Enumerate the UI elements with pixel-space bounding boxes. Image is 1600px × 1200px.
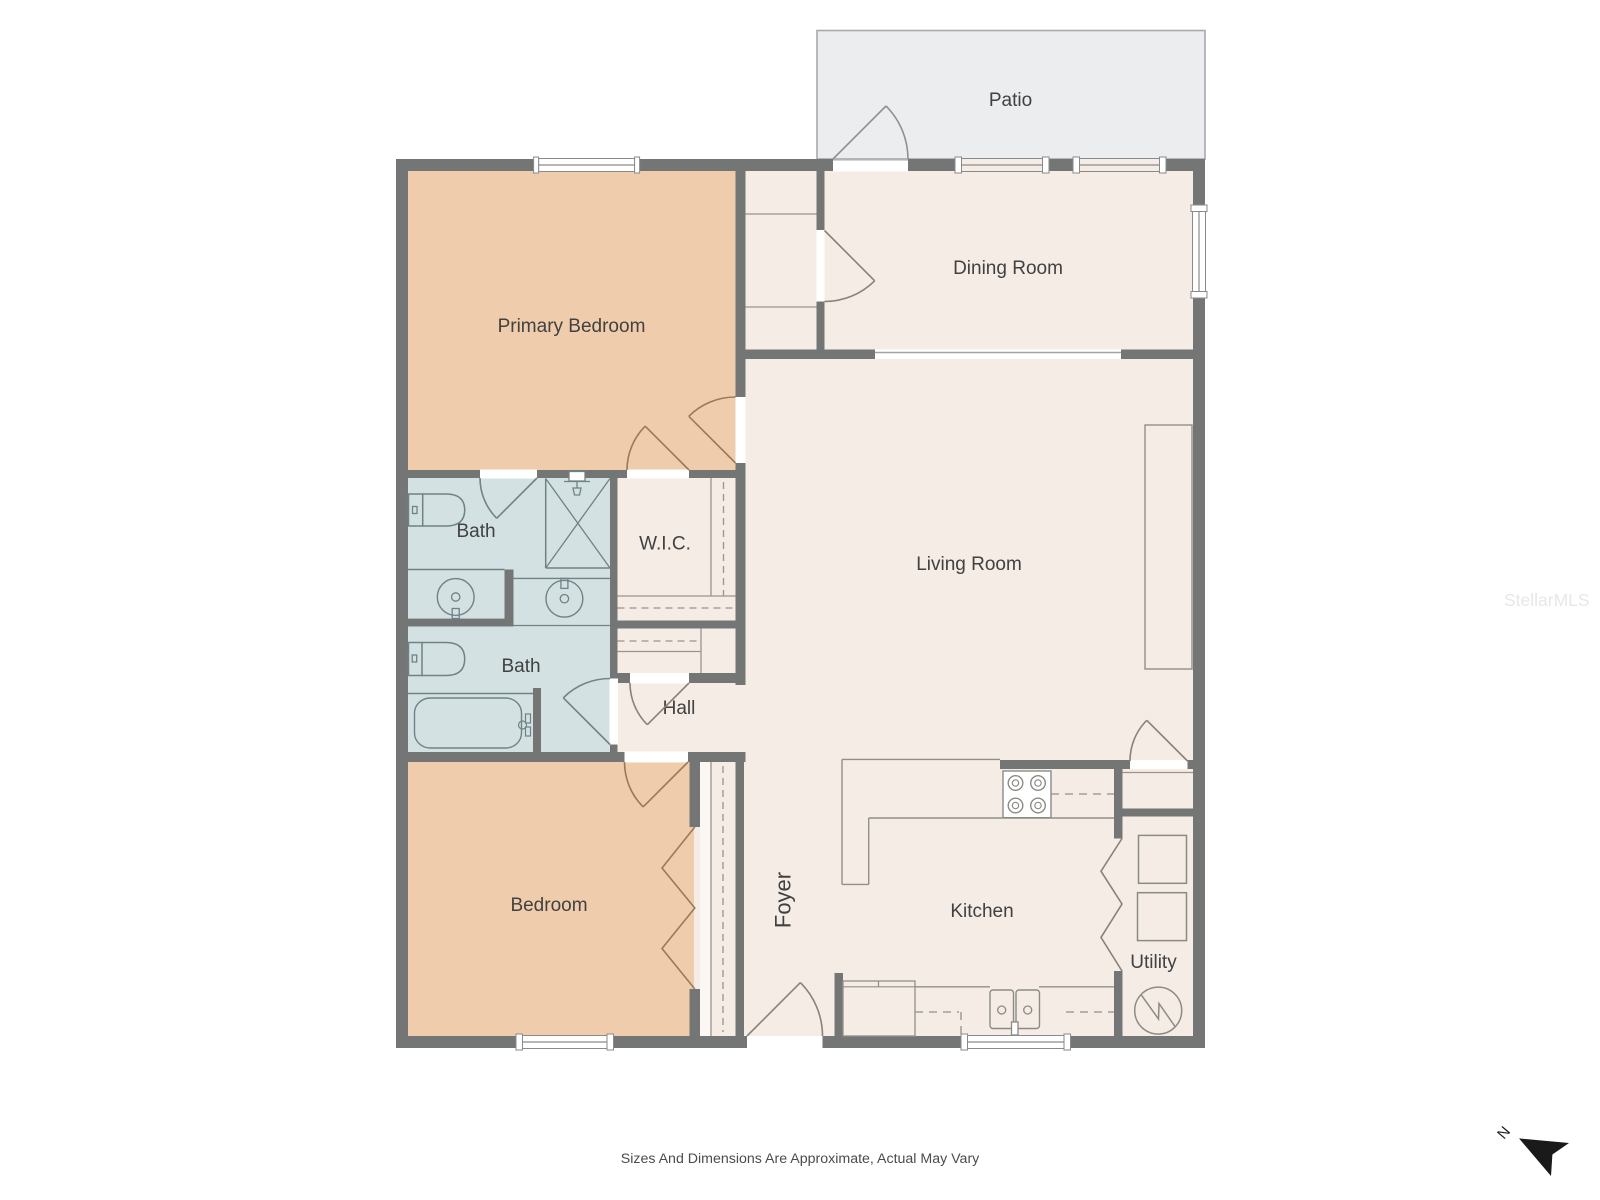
svg-text:Kitchen: Kitchen: [950, 901, 1013, 922]
svg-text:Foyer: Foyer: [771, 872, 796, 928]
svg-text:StellarMLS: StellarMLS: [1504, 590, 1590, 610]
svg-text:Living Room: Living Room: [916, 554, 1022, 575]
svg-text:Utility: Utility: [1130, 952, 1177, 973]
svg-text:Patio: Patio: [989, 90, 1032, 111]
svg-text:W.I.C.: W.I.C.: [639, 534, 691, 555]
svg-text:Hall: Hall: [663, 698, 696, 719]
svg-text:Dining Room: Dining Room: [953, 258, 1063, 279]
svg-text:Sizes And Dimensions Are Appro: Sizes And Dimensions Are Approximate, Ac…: [621, 1151, 980, 1167]
svg-text:Bath: Bath: [501, 656, 540, 677]
svg-text:Primary Bedroom: Primary Bedroom: [498, 316, 646, 337]
svg-text:Bath: Bath: [456, 521, 495, 542]
svg-text:Bedroom: Bedroom: [510, 895, 587, 916]
